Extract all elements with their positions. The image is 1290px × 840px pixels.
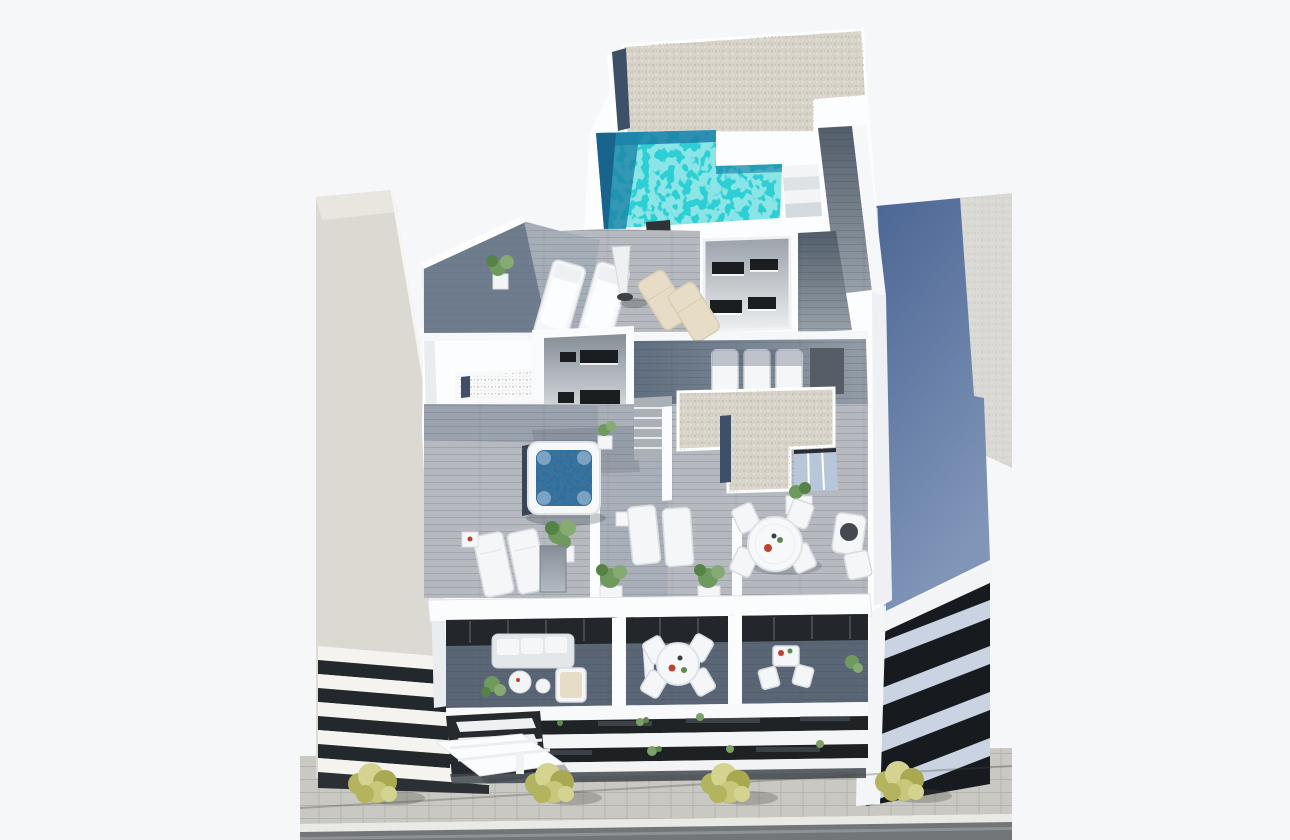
lounger [662, 507, 694, 567]
dining-table [748, 517, 802, 571]
pool-steps [782, 164, 822, 218]
balconies [446, 614, 868, 708]
lower-skylight-strip [720, 415, 731, 483]
render-canvas [0, 0, 1290, 840]
balcony-divider [612, 617, 626, 707]
coffee-table [509, 671, 531, 693]
hot-tub [522, 442, 606, 526]
side-table [462, 532, 478, 547]
round-table [657, 643, 699, 685]
rooftop-render [0, 0, 1290, 840]
lounger [627, 505, 661, 566]
main-building [422, 28, 892, 784]
lightwell-courtyard [704, 237, 790, 331]
outdoor-shower [540, 546, 566, 592]
balcony-divider [728, 615, 742, 705]
